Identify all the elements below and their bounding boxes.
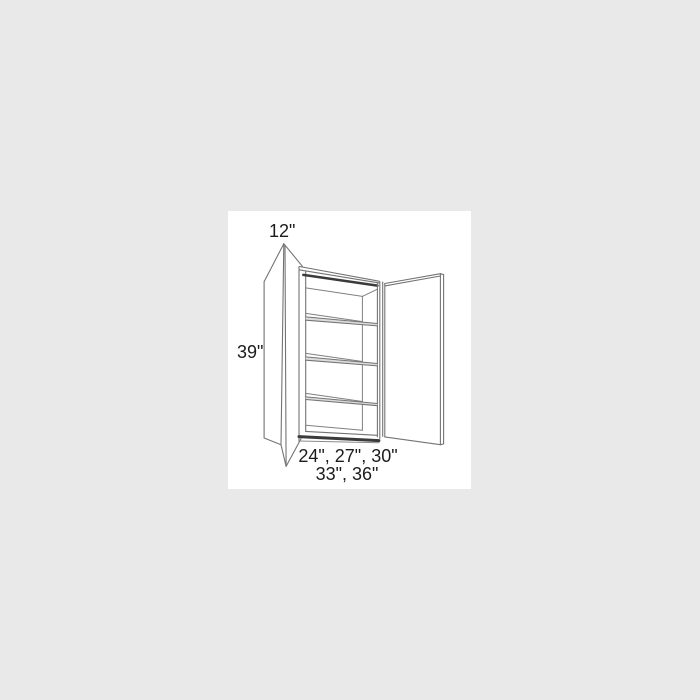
shelves [306, 313, 378, 405]
page-background: 12" 39" 24", 27", 30" 33", 36" [0, 0, 700, 700]
left-door [264, 244, 302, 467]
width-options-line2: 33", 36" [316, 465, 379, 483]
right-door [383, 274, 444, 445]
width-options-line1: 24", 27", 30" [298, 447, 397, 465]
drawing-canvas: 12" 39" 24", 27", 30" 33", 36" [228, 211, 471, 489]
depth-dimension-label: 12" [269, 222, 295, 240]
cabinet-bottom [299, 425, 379, 442]
height-dimension-label: 39" [237, 343, 263, 361]
